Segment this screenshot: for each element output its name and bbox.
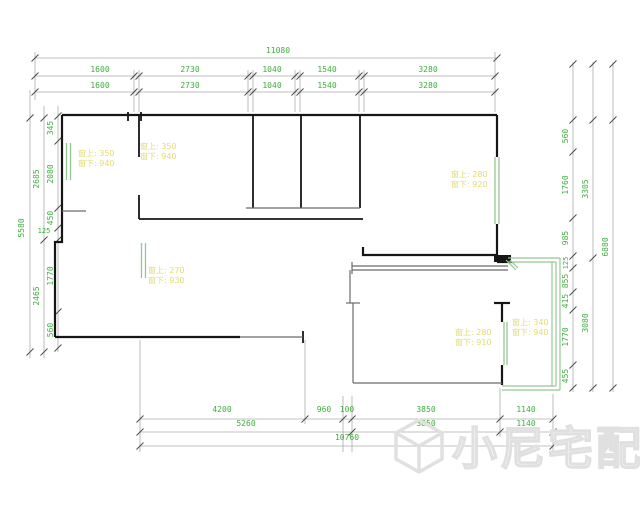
window-top-value: 窗上: 340 — [512, 318, 549, 328]
dim-left-outer: 5580 — [18, 218, 26, 237]
dim-top-r1-3: 1540 — [317, 66, 336, 74]
window-height-label-master: 窗上: 280 窗下: 920 — [451, 170, 488, 190]
dim-right-inner-1: 1760 — [562, 175, 570, 194]
window-top-value: 窗上: 280 — [451, 170, 488, 180]
window-top-value: 窗上: 350 — [140, 142, 177, 152]
dim-right-inner-0: 560 — [562, 129, 570, 143]
dim-left-inner-3: 1770 — [47, 266, 55, 285]
dimension-lines — [30, 52, 613, 452]
dim-right-inner-4: 855 — [562, 274, 570, 288]
dim-right-inner-5: 415 — [562, 294, 570, 308]
dim-bottom-r1-2: 100 — [340, 406, 354, 414]
dim-left-small: 125 — [38, 227, 51, 235]
dim-right-inner-7: 455 — [562, 369, 570, 383]
interior-walls-gray — [62, 208, 508, 383]
window-sill-value: 窗下: 940 — [140, 152, 177, 162]
window-top-value: 窗上: 280 — [455, 328, 492, 338]
dim-bottom-total: 10760 — [335, 434, 359, 442]
dim-bottom-r1-0: 4200 — [212, 406, 231, 414]
watermark: 小尼宅配 — [390, 412, 640, 477]
dim-right-inner-6: 1770 — [562, 327, 570, 346]
window-height-label-bedroom2: 窗上: 350 窗下: 940 — [140, 142, 177, 162]
dim-top-r1-2: 1040 — [262, 66, 281, 74]
dim-left-mid-1: 2465 — [33, 286, 41, 305]
window-height-label-balcony: 窗上: 340 窗下: 940 — [512, 318, 549, 338]
dim-top-total: 11080 — [266, 47, 290, 55]
dim-bottom-r2-0: 5260 — [236, 420, 255, 428]
dim-right-inner-3: 125 — [562, 257, 570, 270]
window-sill-value: 窗下: 920 — [451, 180, 488, 190]
dim-left-inner-0: 345 — [47, 121, 55, 135]
dim-right-inner-2: 985 — [562, 231, 570, 245]
dim-bottom-r1-1: 960 — [317, 406, 331, 414]
dim-right-mid-0: 3305 — [582, 179, 590, 198]
dim-top-r2-0: 1600 — [90, 82, 109, 90]
dim-top-r2-3: 1540 — [317, 82, 336, 90]
dim-left-inner-4: 560 — [47, 323, 55, 337]
window-top-value: 窗上: 270 — [148, 266, 185, 276]
dim-top-r2-4: 3280 — [418, 82, 437, 90]
window-top-value: 窗上: 350 — [78, 149, 115, 159]
floor-plan-canvas: 11080 1600 2730 1040 1540 3280 1600 2730… — [0, 0, 640, 512]
window-sill-value: 窗下: 930 — [148, 276, 185, 286]
dim-top-r2-2: 1040 — [262, 82, 281, 90]
exterior-walls — [55, 115, 512, 385]
dim-right-mid-1: 3080 — [582, 313, 590, 332]
dim-top-r1-1: 2730 — [180, 66, 199, 74]
window-height-label-living: 窗上: 270 窗下: 930 — [148, 266, 185, 286]
window-sill-value: 窗下: 940 — [78, 159, 115, 169]
dim-left-mid-0: 2685 — [33, 169, 41, 188]
dim-left-inner-1: 2080 — [47, 164, 55, 183]
watermark-text: 小尼宅配 — [452, 412, 640, 477]
window-height-label-bedroom3: 窗上: 280 窗下: 910 — [455, 328, 492, 348]
dim-top-r1-4: 3280 — [418, 66, 437, 74]
window-height-label-entry: 窗上: 350 窗下: 940 — [78, 149, 115, 169]
cube-logo-icon — [390, 414, 448, 476]
window-sill-value: 窗下: 940 — [512, 328, 549, 338]
window-sill-value: 窗下: 910 — [455, 338, 492, 348]
dim-right-outer: 6880 — [602, 237, 610, 256]
dim-top-r1-0: 1600 — [90, 66, 109, 74]
dim-left-inner-2: 450 — [47, 211, 55, 225]
dim-top-r2-1: 2730 — [180, 82, 199, 90]
